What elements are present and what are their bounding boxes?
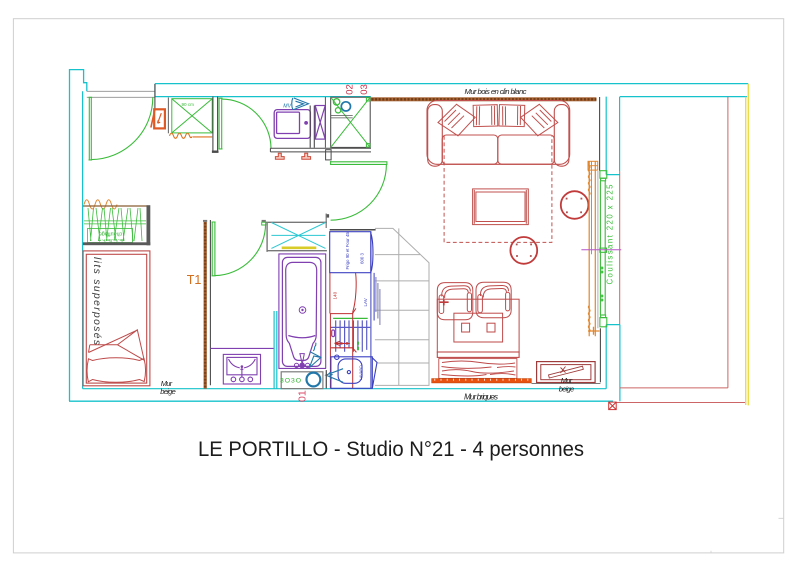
svg-text:Coulissant 220 x 225: Coulissant 220 x 225 [606, 184, 615, 285]
svg-text:03: 03 [359, 84, 370, 95]
svg-text:Mur bois en clin blanc: Mur bois en clin blanc [465, 87, 527, 96]
svg-text:3O3O: 3O3O [280, 378, 301, 385]
svg-text:LAVABO: LAVABO [358, 365, 363, 380]
svg-text:02: 02 [345, 84, 356, 95]
svg-text:600 3: 600 3 [360, 252, 365, 264]
svg-text:MV: MV [283, 104, 291, 110]
svg-text:chauffage: chauffage [99, 231, 123, 237]
svg-text:01: 01 [296, 390, 308, 402]
svg-text:Frigo 90 et Four 45: Frigo 90 et Four 45 [345, 232, 350, 270]
svg-text:beige: beige [160, 387, 176, 396]
svg-text:LE PORTILLO - Studio N°21 - 4: LE PORTILLO - Studio N°21 - 4 personnes [198, 437, 584, 461]
svg-text:beige: beige [559, 385, 575, 394]
svg-text:lits superposés: lits superposés [91, 257, 102, 345]
svg-text:140: 140 [333, 291, 338, 299]
svg-text:90 cm: 90 cm [182, 102, 195, 107]
svg-text:T1: T1 [187, 273, 202, 287]
svg-text:LAV: LAV [363, 297, 368, 306]
svg-text:Mur briques: Mur briques [464, 392, 498, 402]
